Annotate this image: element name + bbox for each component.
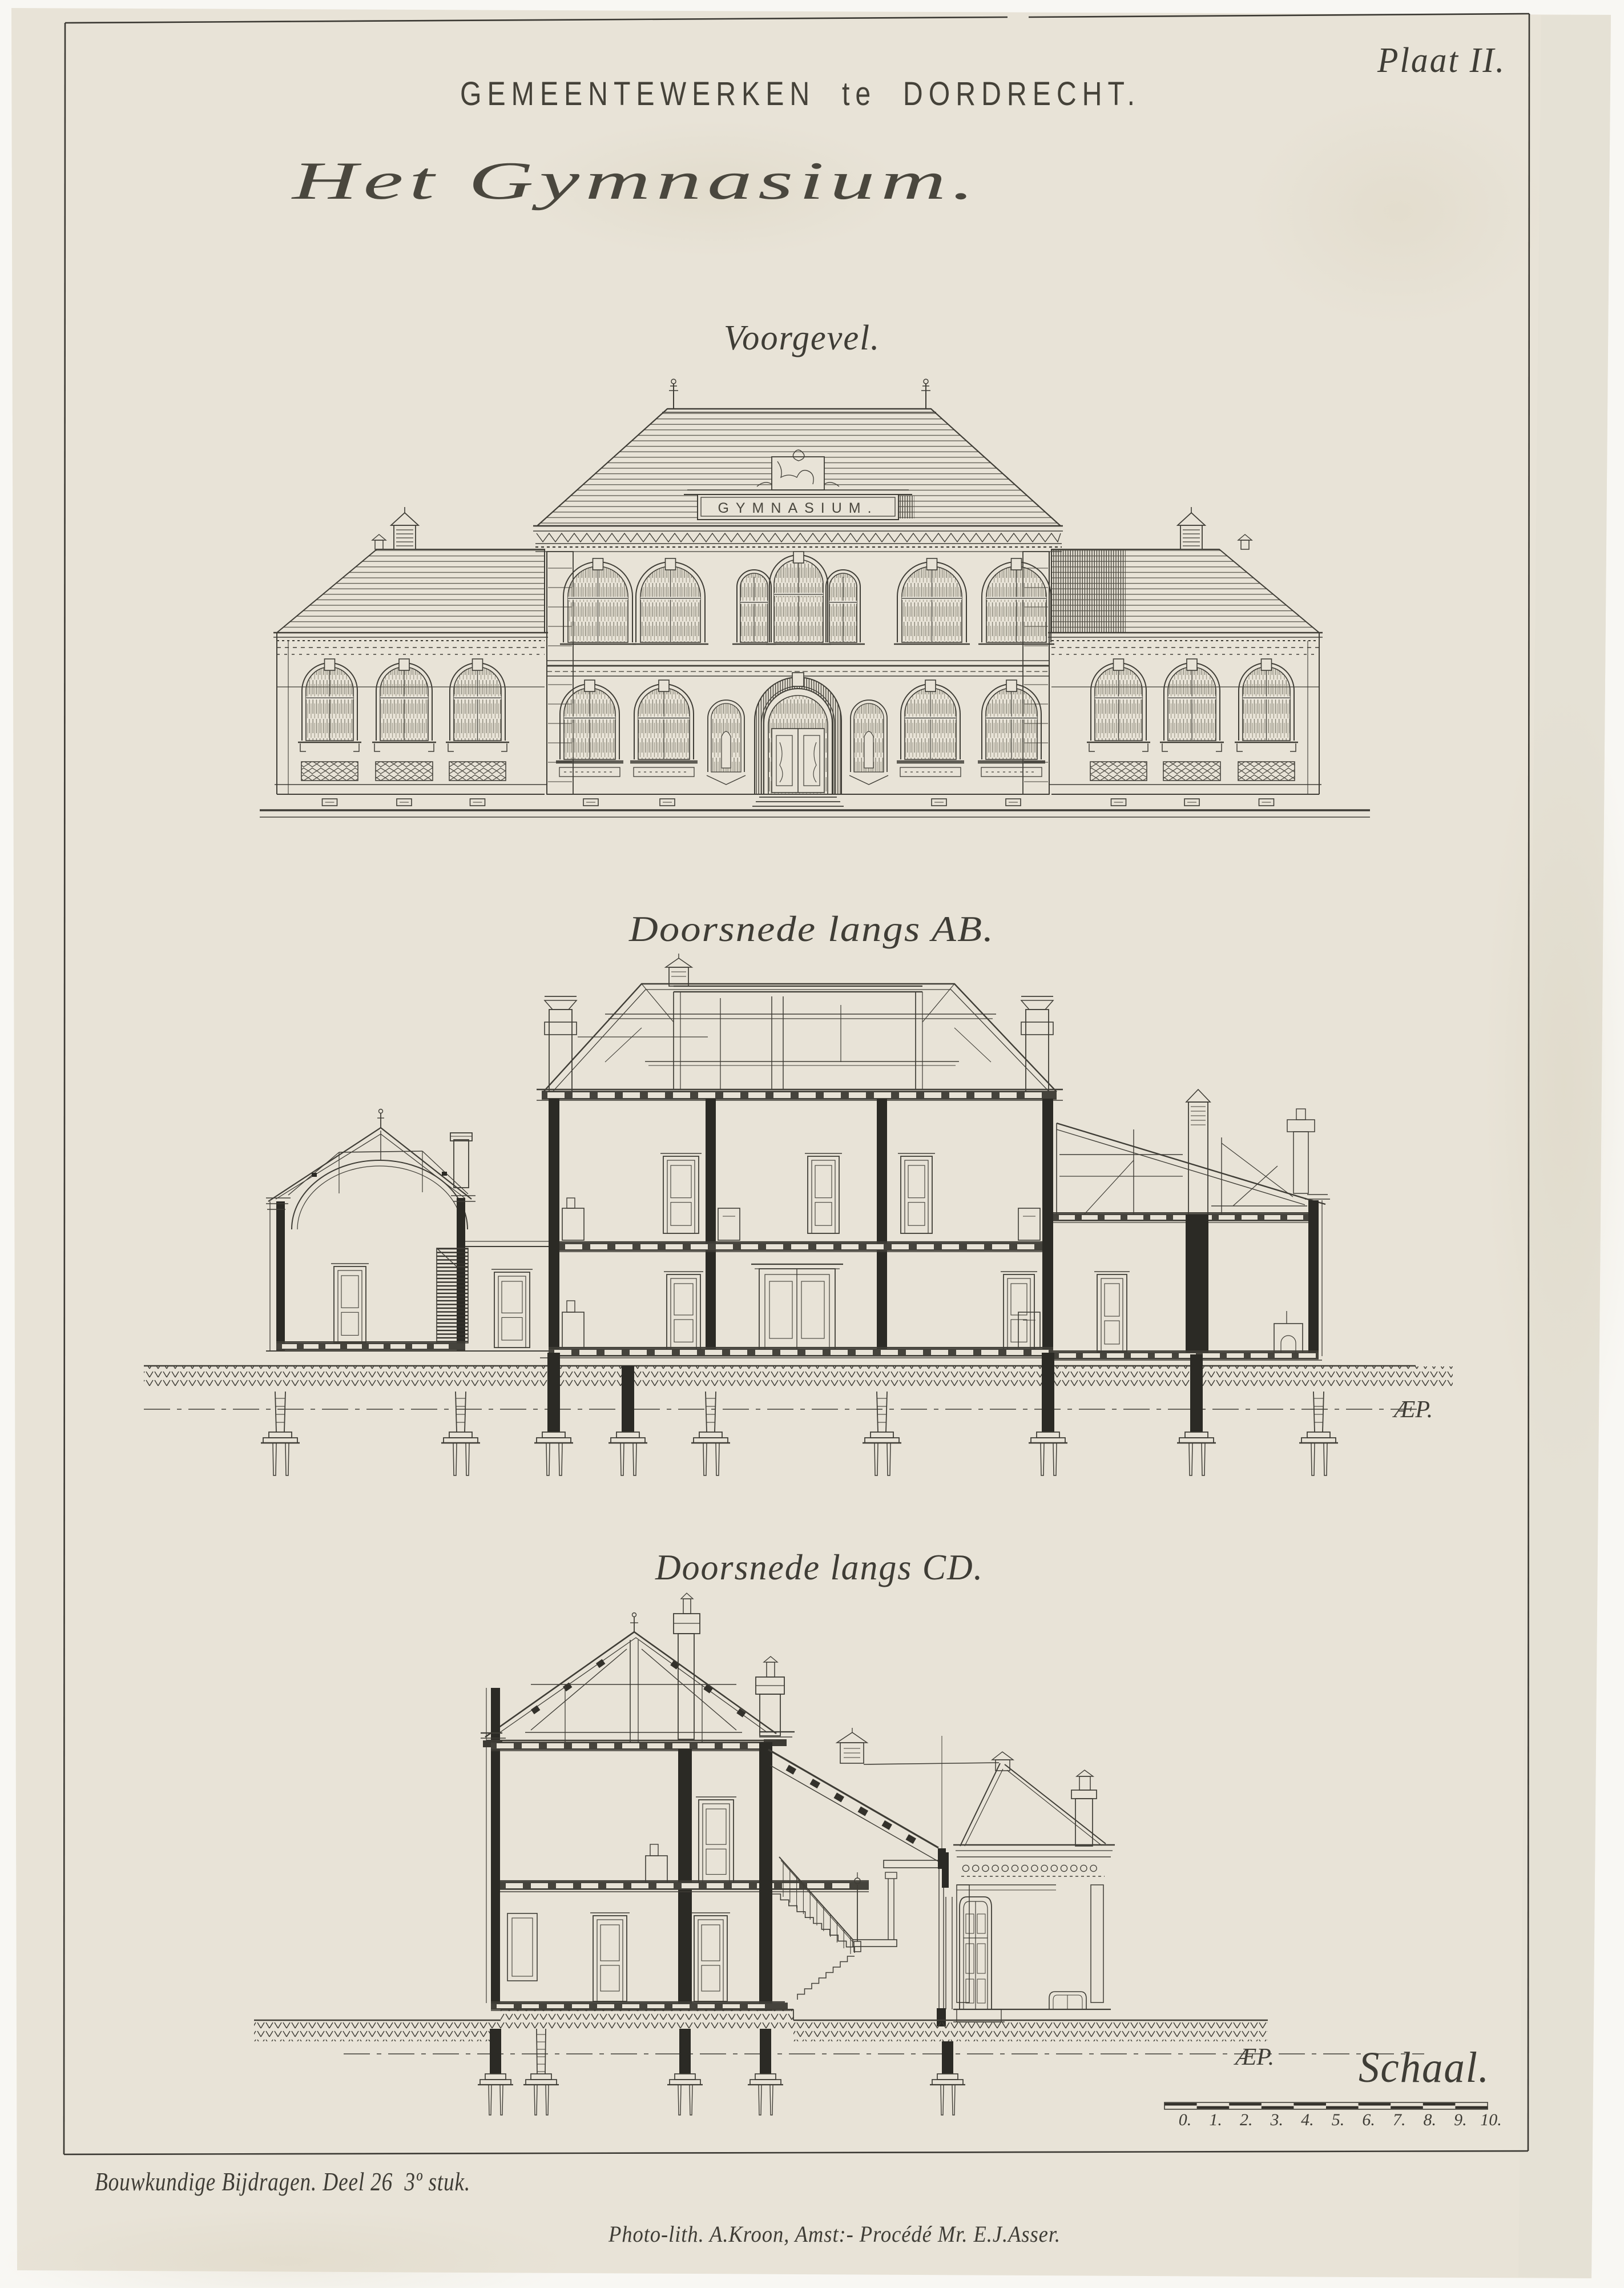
- svg-text:6.: 6.: [1362, 2110, 1375, 2129]
- svg-text:ÆP.: ÆP.: [1234, 2044, 1274, 2070]
- svg-text:10.: 10.: [1480, 2110, 1502, 2129]
- svg-text:7.: 7.: [1393, 2110, 1406, 2129]
- svg-text:4.: 4.: [1301, 2110, 1314, 2129]
- svg-text:9.: 9.: [1454, 2110, 1467, 2129]
- svg-text:GYMNASIUM.: GYMNASIUM.: [718, 500, 878, 516]
- svg-text:0.: 0.: [1179, 2110, 1192, 2129]
- svg-text:Voorgevel.: Voorgevel.: [724, 319, 880, 357]
- svg-text:1.: 1.: [1209, 2110, 1222, 2129]
- svg-text:GEMEENTEWERKEN te DORDRECHT.: GEMEENTEWERKEN te DORDRECHT.: [460, 75, 1141, 112]
- svg-text:Schaal.: Schaal.: [1359, 2044, 1490, 2092]
- svg-text:5.: 5.: [1332, 2110, 1345, 2129]
- svg-text:3.: 3.: [1270, 2110, 1284, 2129]
- svg-text:8.: 8.: [1424, 2110, 1437, 2129]
- svg-text:Bouwkundige Bijdragen. Deel 26: Bouwkundige Bijdragen. Deel 26 3º stuk.: [95, 2167, 470, 2196]
- svg-text:2.: 2.: [1240, 2110, 1253, 2129]
- svg-text:Doorsnede langs AB.: Doorsnede langs AB.: [628, 908, 994, 949]
- svg-text:Het Gymnasium.: Het Gymnasium.: [291, 151, 980, 211]
- svg-text:Photo-lith. A.Kroon, Amst:- Pr: Photo-lith. A.Kroon, Amst:- Procédé Mr. …: [608, 2221, 1061, 2247]
- svg-text:Plaat II.: Plaat II.: [1377, 41, 1506, 80]
- svg-text:ÆP.: ÆP.: [1392, 1397, 1433, 1423]
- svg-text:Doorsnede langs CD.: Doorsnede langs CD.: [655, 1547, 984, 1587]
